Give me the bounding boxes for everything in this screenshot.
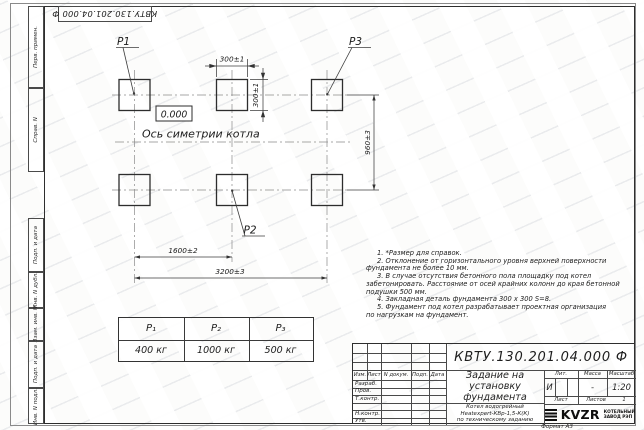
tb-row-empty bbox=[353, 403, 381, 411]
table-value-p3: 500 кг bbox=[249, 340, 312, 360]
kvzr-emblem-icon bbox=[545, 408, 557, 421]
tb-row-tkontr: Т.контр. bbox=[353, 395, 381, 403]
table-header-p2: P₂ bbox=[184, 318, 248, 339]
tb-lit-label: Лит. bbox=[544, 370, 578, 378]
tb-mass-value: - bbox=[578, 378, 607, 396]
elevation-mark: 0.000 bbox=[161, 109, 188, 120]
company-logo: KVZR КОТЕЛЬНЫЙ ЗАВОД РЭП bbox=[544, 404, 636, 425]
tb-row-utv: Утв. bbox=[353, 418, 381, 426]
kvzr-subtitle: КОТЕЛЬНЫЙ ЗАВОД РЭП bbox=[604, 410, 636, 420]
tb-col-list: Лист bbox=[367, 370, 381, 380]
title-block: Изм. Лист N докум. Подп. Дата Разраб. Пр… bbox=[352, 343, 635, 424]
tb-product: Котел водогрейный Heatexpert-КВр-1,5-К(К… bbox=[446, 403, 544, 425]
technical-notes: 1. *Размер для справок. 2. Отклонение от… bbox=[366, 250, 636, 319]
drawing-sheet: Перв. примен. Справ. N Подп. и дата Инв.… bbox=[0, 0, 644, 430]
kvzr-brand: KVZR bbox=[561, 407, 600, 422]
note-line: по нагрузкам на фундамент. bbox=[366, 312, 636, 320]
dim-side-height: 300±1 bbox=[251, 83, 260, 108]
tb-col-podp: Подп. bbox=[411, 370, 429, 380]
load-table: P₁ P₂ P₃ 400 кг 1000 кг 500 кг bbox=[118, 317, 314, 362]
dim-full-span: 3200±3 bbox=[215, 267, 245, 276]
tb-scale-value: 1:20 bbox=[607, 378, 636, 396]
tb-sheet-label: Лист bbox=[544, 396, 578, 404]
center-lines bbox=[112, 70, 352, 283]
tb-row-nkontr: Н.контр. bbox=[353, 410, 381, 418]
tb-scale-label: Масштаб bbox=[607, 370, 636, 378]
tb-row-razrab: Разраб. bbox=[353, 380, 381, 388]
table-value-p2: 1000 кг bbox=[184, 340, 248, 360]
tb-doc-number: КВТУ.130.201.04.000 Ф bbox=[446, 344, 636, 370]
tb-col-izm: Изм. bbox=[353, 370, 367, 380]
tb-lit-value: И bbox=[544, 378, 555, 396]
dim-row-spacing: 960±3 bbox=[363, 130, 372, 155]
tb-title: Задание на установку фундамента bbox=[446, 370, 544, 403]
dim-top-width: 300±1 bbox=[220, 55, 245, 64]
format-label: Формат А3 bbox=[517, 424, 597, 430]
foundation-pads bbox=[119, 80, 343, 206]
tb-sheets-value: 1 bbox=[615, 396, 633, 404]
point-label-p3: P3 bbox=[349, 36, 362, 48]
tb-sheets-label: Листов bbox=[581, 396, 611, 404]
table-header-p3: P₃ bbox=[249, 318, 312, 339]
tb-row-prov: Пров. bbox=[353, 388, 381, 396]
point-label-p2: P2 bbox=[244, 225, 257, 237]
table-value-p1: 400 кг bbox=[119, 340, 183, 360]
tb-col-ndokum: N докум. bbox=[381, 370, 411, 380]
point-label-p1: P1 bbox=[117, 36, 130, 48]
tb-mass-label: Масса bbox=[578, 370, 607, 378]
tb-col-data: Дата bbox=[429, 370, 446, 380]
symmetry-axis-label: Ось симетрии котла bbox=[142, 128, 260, 141]
dim-half-span: 1600±2 bbox=[168, 246, 198, 255]
table-header-p1: P₁ bbox=[119, 318, 183, 339]
